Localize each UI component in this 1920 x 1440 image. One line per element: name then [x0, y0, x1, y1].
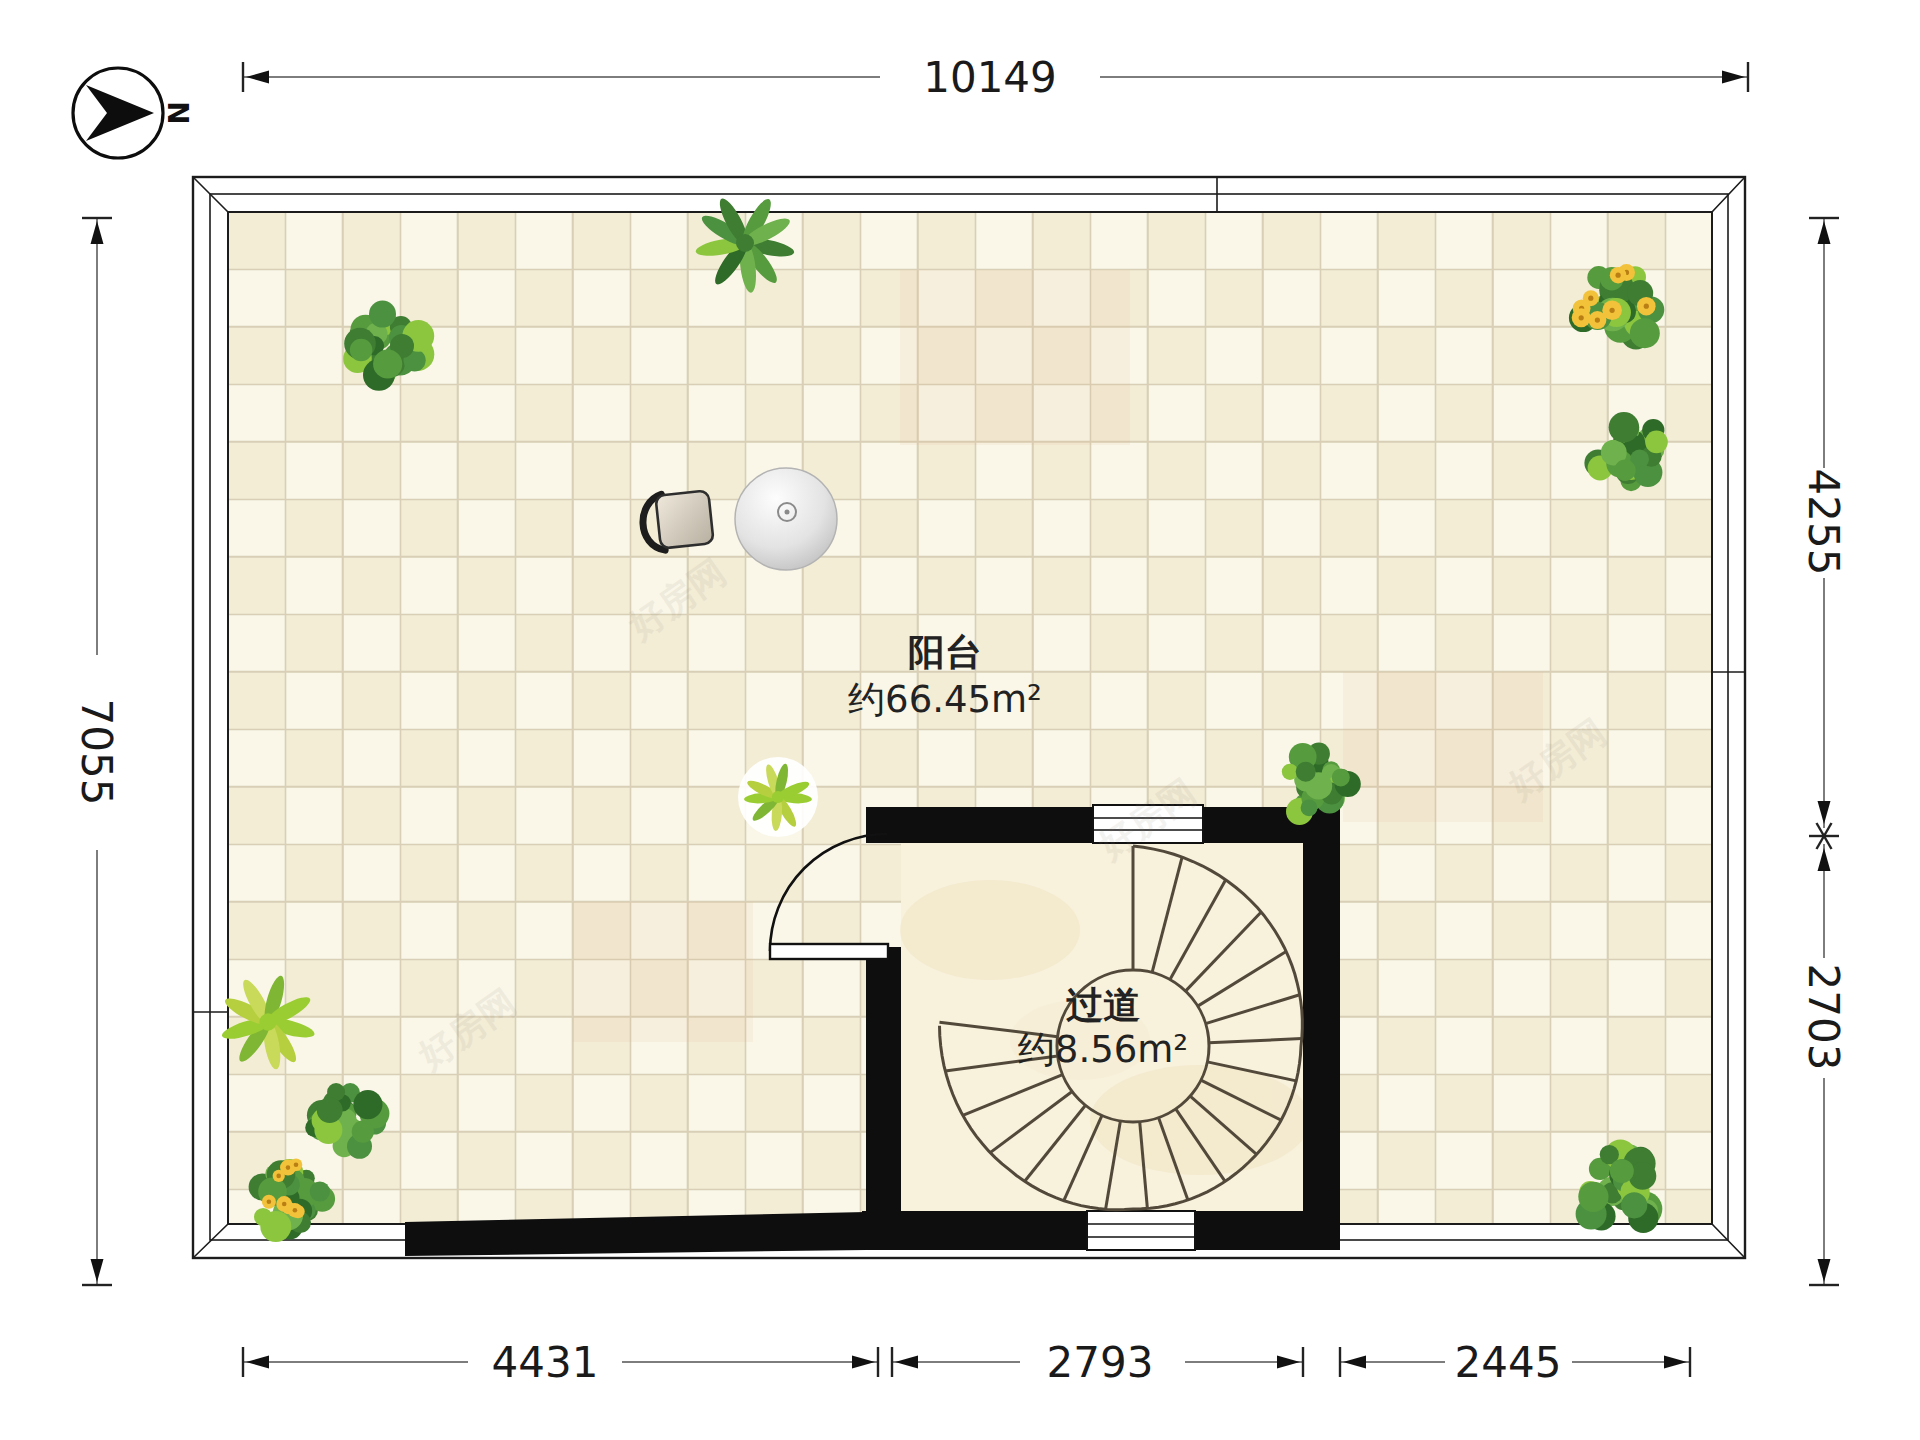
round-table-icon — [735, 468, 837, 570]
dimension-arrow — [1818, 1259, 1831, 1282]
corridor-wall-bottom-right — [1195, 1211, 1340, 1250]
balcony-area: 约66.45m² — [848, 678, 1042, 721]
corridor-window-bottom — [1087, 1211, 1195, 1250]
dim-right-upper: 4255 — [1799, 469, 1848, 576]
corridor-wall-bottom-left — [862, 1211, 1087, 1250]
dimension-arrow — [852, 1356, 875, 1369]
compass-north-label: N — [161, 101, 194, 124]
dimension-arrow — [1664, 1356, 1687, 1369]
dimension-arrow — [895, 1356, 918, 1369]
dim-right-lower: 2703 — [1799, 964, 1848, 1071]
dimension-arrow — [1818, 848, 1831, 871]
dim-bottom-left: 4431 — [492, 1338, 599, 1387]
dimension-arrow — [1818, 221, 1831, 244]
dim-left: 7055 — [72, 699, 121, 806]
balcony-name: 阳台 — [908, 631, 982, 674]
dim-top: 10149 — [923, 53, 1057, 102]
dim-bottom-middle: 2793 — [1047, 1338, 1154, 1387]
plant-sprout-icon — [738, 757, 818, 837]
dimension-arrow — [246, 1356, 269, 1369]
compass-north-icon: N — [73, 68, 194, 158]
door-leaf — [770, 944, 888, 959]
dimension-arrow — [246, 71, 269, 84]
corridor-name: 过道 — [1066, 984, 1140, 1027]
floorplan-canvas: N 10149 7055 4255 2703 4431 2793 2445 阳台… — [0, 0, 1920, 1440]
dimension-arrow — [1343, 1356, 1366, 1369]
corridor-wall-right — [1303, 807, 1340, 1250]
corridor-area: 约8.56m² — [1018, 1028, 1188, 1071]
dim-bottom-right: 2445 — [1455, 1338, 1562, 1387]
dimension-arrow — [1277, 1356, 1300, 1369]
dimension-arrow — [91, 1259, 104, 1282]
dimension-arrow — [1818, 801, 1831, 824]
corridor-wall-left — [866, 947, 901, 1250]
dimension-arrow — [1722, 71, 1745, 84]
dimension-arrow — [91, 221, 104, 244]
